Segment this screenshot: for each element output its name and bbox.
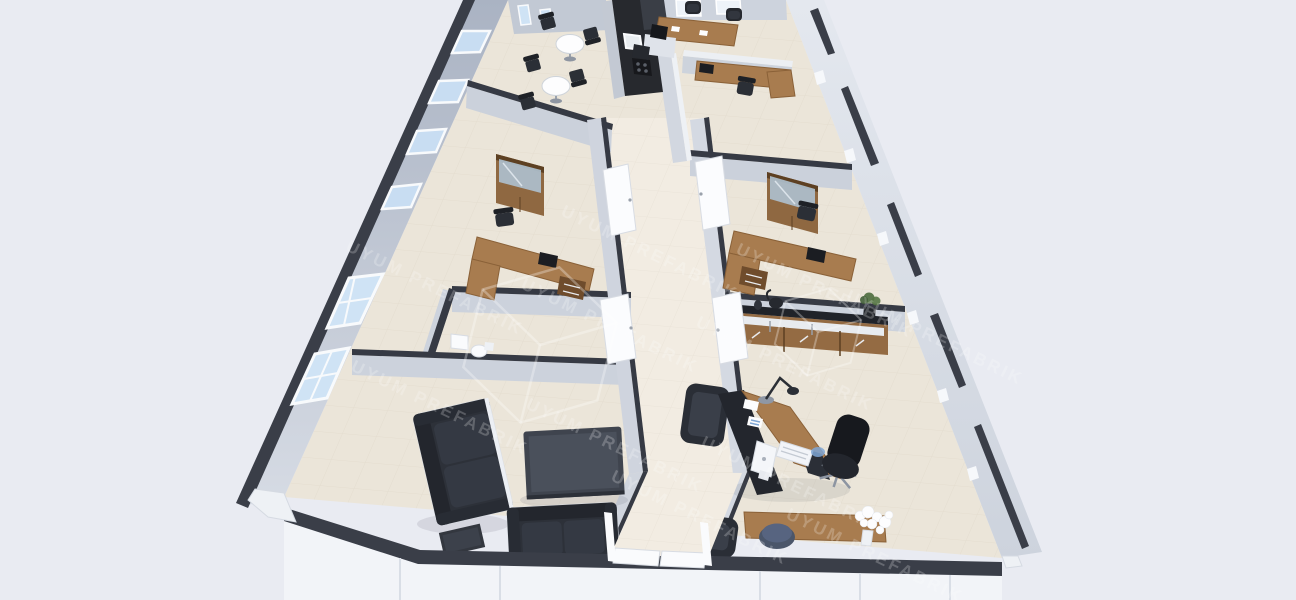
cubicle-desk-return [767,70,795,98]
burner [637,68,641,72]
office-render: UYUM PREFABRIK UYUM PREFABRIK UYUM PREFA… [0,0,1296,600]
render-viewport: UYUM PREFABRIK UYUM PREFABRIK UYUM PREFA… [0,0,1296,600]
chair-cushion [687,391,723,439]
meeting-chair [685,1,701,14]
north-window [518,5,531,25]
burner [636,62,640,66]
paper [671,26,680,32]
door-handle [699,192,702,195]
cooktop [632,58,652,76]
burner [643,63,647,67]
gutter-right [1002,556,1022,568]
door-handle [628,198,631,201]
entrance-door [660,551,706,568]
mouse-pad [811,447,825,457]
paper [699,30,708,36]
sofa-cushion [521,521,563,557]
sofa-cushion [563,519,605,555]
toilet-tank [484,342,494,351]
washbasin [451,334,468,350]
burner [644,69,648,73]
entrance-door [613,548,660,566]
lamp-head [787,387,799,395]
task-chair [493,207,515,228]
kettle [769,298,783,309]
meeting-chair [726,8,742,21]
vase [754,300,762,310]
